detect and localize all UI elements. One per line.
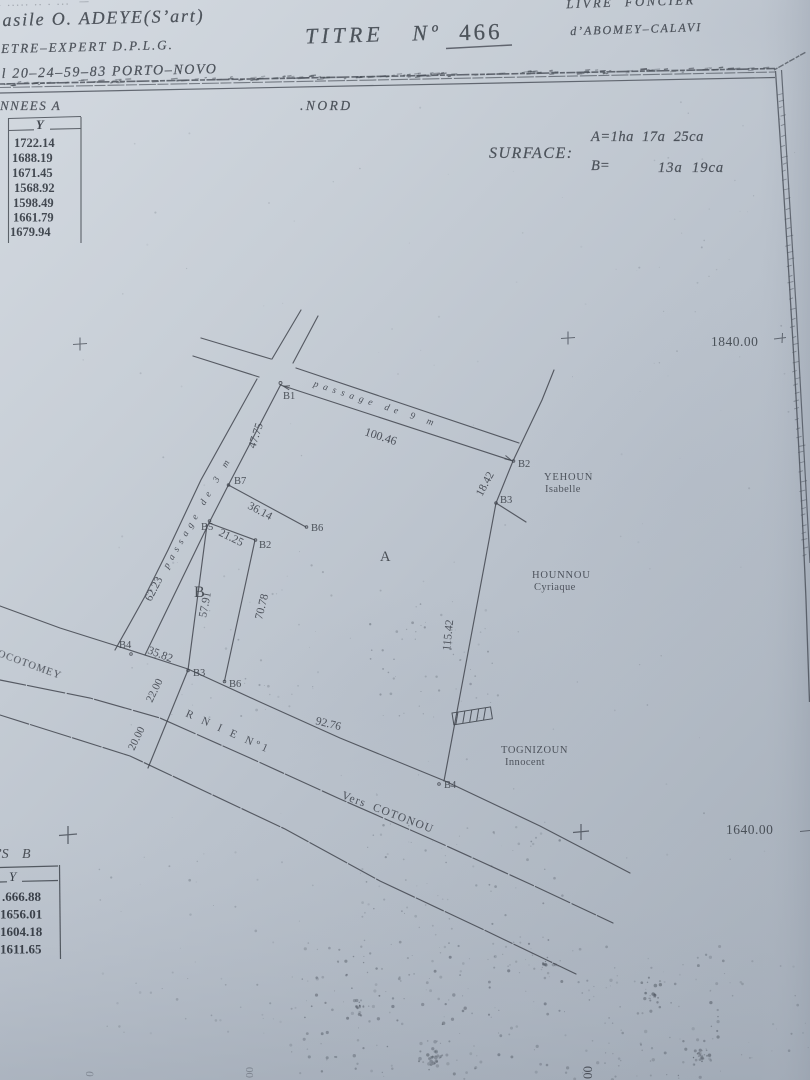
svg-text:B1: B1 bbox=[283, 391, 295, 402]
svg-text:466: 466 bbox=[459, 19, 503, 45]
svg-text:1679.94: 1679.94 bbox=[10, 225, 51, 239]
svg-text:B: B bbox=[22, 847, 31, 862]
svg-text:B6: B6 bbox=[229, 679, 241, 690]
svg-text:TOGNIZOUN: TOGNIZOUN bbox=[501, 745, 568, 756]
svg-text:’S: ’S bbox=[0, 847, 9, 862]
svg-text:00: 00 bbox=[244, 1067, 256, 1079]
svg-text:1611.65: 1611.65 bbox=[0, 942, 42, 957]
svg-text:A=1ha 17a 25ca: A=1ha 17a 25ca bbox=[590, 129, 704, 145]
svg-text:1722.14: 1722.14 bbox=[14, 136, 55, 150]
svg-text:1656.01: 1656.01 bbox=[0, 907, 42, 922]
svg-text:.666.88: .666.88 bbox=[2, 889, 42, 904]
svg-text:A: A bbox=[380, 549, 391, 565]
svg-text:B4: B4 bbox=[444, 780, 457, 791]
svg-text:SURFACE:: SURFACE: bbox=[489, 145, 574, 162]
svg-text:B5: B5 bbox=[201, 522, 213, 533]
svg-text:1688.19: 1688.19 bbox=[12, 151, 53, 165]
svg-text:YEHOUN: YEHOUN bbox=[544, 472, 593, 483]
svg-text:00: 00 bbox=[580, 1066, 595, 1079]
svg-text:Isabelle: Isabelle bbox=[545, 484, 581, 495]
svg-text:1640.00: 1640.00 bbox=[726, 822, 773, 837]
svg-text:B2: B2 bbox=[259, 540, 271, 551]
svg-text:B6: B6 bbox=[311, 523, 323, 534]
svg-text:B4: B4 bbox=[119, 640, 132, 651]
svg-text:NNEES A: NNEES A bbox=[0, 98, 61, 113]
svg-text:Innocent: Innocent bbox=[505, 757, 545, 768]
svg-text:B=: B= bbox=[591, 158, 610, 174]
svg-text:1598.49: 1598.49 bbox=[13, 196, 54, 210]
svg-text:1604.18: 1604.18 bbox=[0, 924, 43, 939]
svg-text:B2: B2 bbox=[518, 459, 530, 470]
svg-text:1661.79: 1661.79 bbox=[13, 211, 54, 225]
svg-text:1568.92: 1568.92 bbox=[14, 181, 55, 195]
svg-text:13a 19ca: 13a 19ca bbox=[658, 160, 724, 176]
svg-text:1671.45: 1671.45 bbox=[12, 166, 53, 180]
svg-text:HOUNNOU: HOUNNOU bbox=[532, 570, 591, 581]
svg-text:.NORD: .NORD bbox=[300, 98, 353, 113]
svg-text:B3: B3 bbox=[193, 668, 205, 679]
svg-text:B3: B3 bbox=[500, 495, 512, 506]
svg-text:TITRE Nº: TITRE Nº bbox=[305, 20, 442, 49]
svg-text:B7: B7 bbox=[234, 476, 246, 487]
svg-text:1840.00: 1840.00 bbox=[711, 334, 758, 349]
svg-text:Cyriaque: Cyriaque bbox=[534, 582, 576, 593]
